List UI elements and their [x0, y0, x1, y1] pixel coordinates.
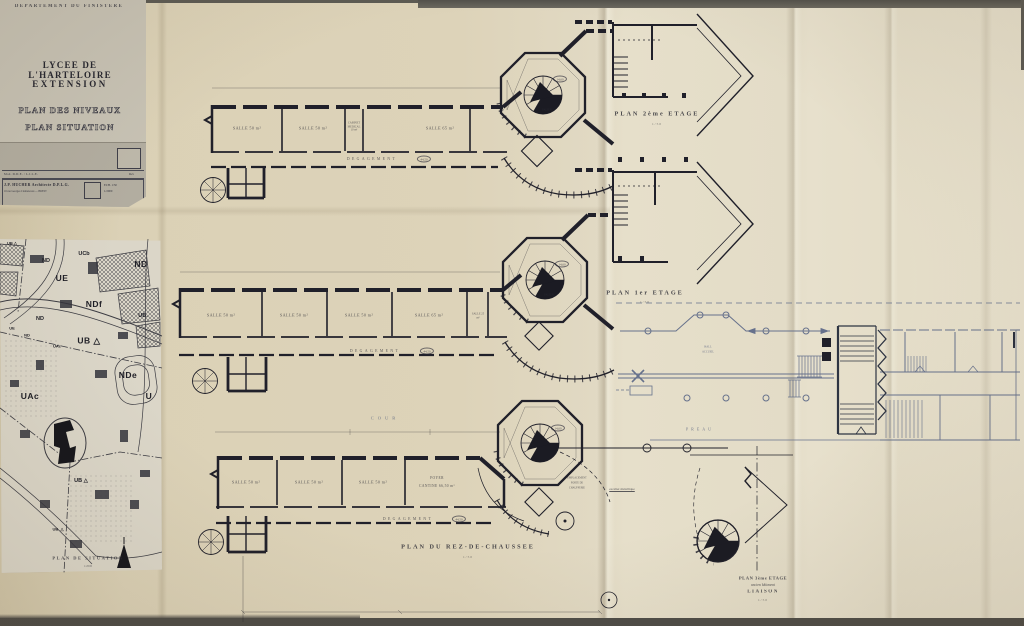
porte-note-line1: EMPLACEMENT: [567, 477, 586, 480]
room-label: SALLE 50 m²: [295, 480, 323, 485]
map-caption: PLAN DE SITUATION: [52, 556, 123, 561]
rotunda-label: PALIER: [542, 109, 552, 112]
map-zone-label: ND: [134, 259, 147, 269]
room-label: SALLE 50 m²: [280, 313, 308, 318]
plan-caption-etage2: PLAN 2ème ETAGE: [615, 111, 700, 118]
corridor-label: DEGAGEMENT: [347, 157, 397, 161]
rotunda-label: PALIER: [544, 294, 554, 297]
map-zone-label: U: [146, 391, 153, 401]
plan-scale-etage1: 1/50: [640, 300, 650, 304]
room-label: SALLE 65 m²: [426, 126, 454, 131]
room-label: SALLE 50 m²: [207, 313, 235, 318]
porte-note-line3: CHAUFFERIE: [569, 487, 585, 490]
plan-caption-etage1: PLAN 1er ETAGE: [606, 290, 684, 297]
plan-caption-etage3-line2: ancien bâtiment: [751, 583, 775, 587]
map-zone-label: UB. △: [52, 527, 63, 532]
map-zone-label: UCb: [78, 251, 89, 257]
rotunda-badge: 14,60: [555, 261, 569, 268]
room-label: SALLE 65 m²: [415, 313, 443, 318]
room-label: SALLE 50 m²: [233, 126, 261, 131]
map-zone-label: UAc: [21, 391, 40, 401]
map-zone-label: UE: [9, 326, 15, 331]
rotunda-badge: 14,60: [551, 425, 565, 432]
room-label: SALLE 50 m²: [359, 480, 387, 485]
map-zone-label: NDe: [119, 370, 138, 380]
map-zone-label: UB △: [7, 241, 17, 246]
map-zone-label: UE: [56, 273, 69, 283]
cour-label: COUR: [371, 416, 400, 421]
room-label: SALLE 25 m²: [472, 312, 485, 319]
room-label: CABINET MEDICAL 10 m²: [346, 122, 362, 133]
preau-label: PREAU: [686, 427, 714, 432]
map-zone-label: UB △: [77, 336, 100, 347]
stair-note: escalier métallique: [609, 487, 635, 491]
plan-caption-etage3-line3: LIAISON: [747, 590, 779, 595]
map-zone-label: UAc: [53, 344, 61, 349]
map-zone-label: UB.: [138, 313, 147, 319]
map-scale: 1/2000: [84, 564, 92, 568]
map-zone-label: NDf: [86, 299, 103, 309]
map-zone-label: UB △: [74, 478, 88, 484]
plan-caption-etage3-line1: PLAN 3ème ETAGE: [739, 576, 787, 581]
corridor-area-badge: 44,50: [420, 348, 434, 355]
hall-label-line1: HALL: [704, 346, 711, 349]
plan-scale-etage2: 1/50: [652, 122, 662, 126]
plan-scale-etage3: 1/50: [758, 598, 768, 602]
map-zone-label: ND: [24, 333, 30, 338]
room-label: SALLE 50 m²: [232, 480, 260, 485]
hall-label-line2: ACCUEIL: [702, 351, 714, 354]
porte-note-line2: PORTE DE: [571, 482, 583, 485]
map-zone-label: ND: [36, 316, 44, 322]
room-label: SALLE 50 m²: [299, 126, 327, 131]
corridor-area-badge: 44,50: [417, 156, 431, 163]
plan-scale-rdc: 1/50: [463, 555, 473, 559]
room-label: SALLE 50 m²: [345, 313, 373, 318]
rotunda-badge: 14,60: [553, 76, 567, 83]
corridor-label: DEGAGEMENT: [383, 517, 433, 521]
room-label-foyer-line2: CANTINE 66,50 m²: [419, 484, 455, 488]
plan-caption-rdc: PLAN DU REZ-DE-CHAUSSEE: [401, 544, 535, 551]
room-label-foyer-line1: FOYER: [430, 476, 444, 480]
map-zone-label: ND: [42, 258, 50, 264]
corridor-area-badge: 44,50: [452, 516, 466, 523]
blueprint-scan: DEPARTEMENT DU FINISTERE LYCEE DE L'HART…: [0, 0, 1024, 626]
corridor-label: DEGAGEMENT: [350, 349, 400, 353]
plan-linework: [0, 0, 1024, 626]
